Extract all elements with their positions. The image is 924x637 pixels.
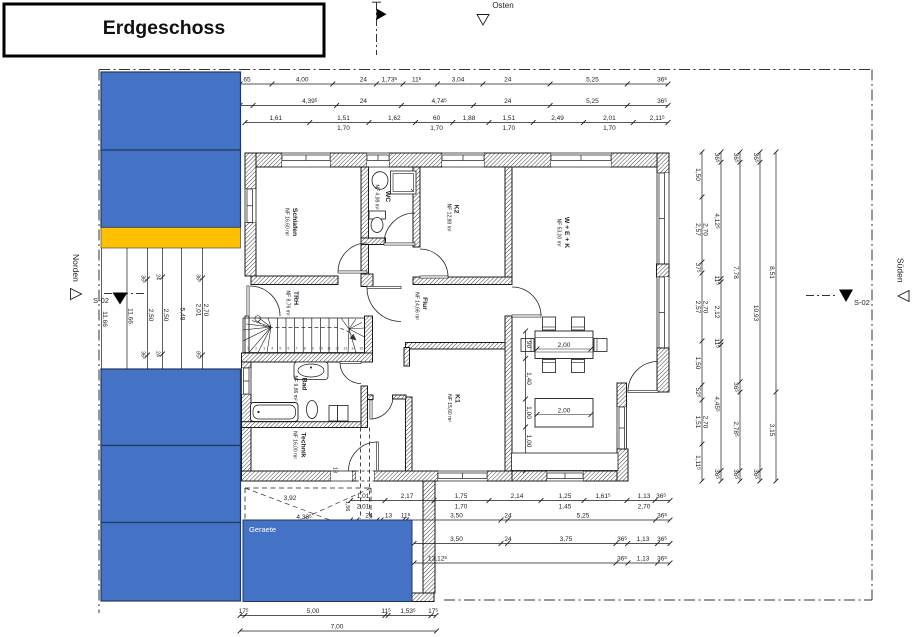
- svg-text:5,00: 5,00: [307, 608, 320, 615]
- svg-text:3,50: 3,50: [450, 536, 463, 543]
- svg-text:1,70: 1,70: [502, 125, 515, 132]
- svg-text:2,70: 2,70: [701, 416, 708, 429]
- svg-text:1,13: 1,13: [638, 493, 651, 500]
- svg-text:NF 16,60 m²: NF 16,60 m²: [284, 208, 290, 236]
- svg-text:9: 9: [312, 347, 314, 351]
- svg-text:13: 13: [385, 512, 393, 519]
- svg-text:1,50: 1,50: [694, 357, 701, 370]
- svg-text:2,01: 2,01: [195, 304, 202, 317]
- svg-text:24: 24: [155, 351, 161, 357]
- svg-text:Geraete: Geraete: [249, 525, 276, 534]
- svg-text:13: 13: [343, 347, 347, 351]
- svg-text:11,66: 11,66: [126, 308, 133, 324]
- svg-text:24: 24: [504, 512, 512, 519]
- svg-text:2,49: 2,49: [551, 115, 564, 122]
- svg-text:2,70: 2,70: [701, 301, 708, 314]
- svg-text:5,48: 5,48: [178, 308, 185, 321]
- svg-text:1,88: 1,88: [463, 115, 476, 122]
- svg-text:10,93: 10,93: [752, 305, 759, 322]
- svg-text:11,66: 11,66: [101, 311, 108, 327]
- svg-text:24: 24: [365, 512, 373, 519]
- svg-text:24: 24: [360, 98, 368, 105]
- svg-text:Flur: Flur: [421, 297, 428, 310]
- svg-text:1,13: 1,13: [637, 536, 650, 543]
- svg-text:NF 16,00 m²: NF 16,00 m²: [292, 431, 298, 459]
- svg-text:14: 14: [351, 347, 355, 351]
- svg-text:5,25: 5,25: [586, 98, 599, 105]
- svg-text:15: 15: [359, 347, 363, 351]
- svg-text:NF 9,86 m²: NF 9,86 m²: [292, 375, 298, 400]
- svg-text:60: 60: [433, 115, 441, 122]
- svg-text:3,92: 3,92: [284, 495, 297, 502]
- svg-text:TRH: TRH: [292, 291, 299, 305]
- svg-text:S-02: S-02: [93, 296, 109, 305]
- svg-text:2,70: 2,70: [638, 504, 651, 511]
- svg-text:Norden: Norden: [71, 254, 81, 282]
- svg-text:18: 18: [332, 467, 338, 473]
- svg-text:K1: K1: [454, 394, 461, 403]
- svg-text:1,50: 1,50: [694, 168, 701, 181]
- svg-text:2,00: 2,00: [558, 342, 571, 349]
- svg-text:1: 1: [247, 347, 249, 351]
- svg-text:2,70: 2,70: [701, 223, 708, 236]
- svg-text:2,50: 2,50: [162, 309, 169, 322]
- svg-text:24: 24: [155, 274, 161, 280]
- svg-text:3,04: 3,04: [452, 76, 465, 83]
- svg-text:4: 4: [271, 347, 273, 351]
- svg-text:NF 15,60 m²: NF 15,60 m²: [446, 394, 452, 422]
- svg-text:7,00: 7,00: [331, 623, 344, 630]
- svg-text:2,00: 2,00: [558, 408, 571, 415]
- svg-text:2,01: 2,01: [357, 504, 370, 511]
- svg-text:1,13: 1,13: [637, 555, 650, 562]
- svg-text:3,75: 3,75: [560, 536, 573, 543]
- svg-text:2: 2: [255, 347, 257, 351]
- svg-text:1,45: 1,45: [559, 504, 572, 511]
- svg-text:1,40: 1,40: [525, 372, 532, 385]
- svg-text:1,70: 1,70: [430, 125, 443, 132]
- svg-text:1,00: 1,00: [525, 435, 532, 448]
- svg-text:1,75: 1,75: [455, 493, 468, 500]
- svg-text:WC: WC: [384, 191, 391, 202]
- svg-text:1,00: 1,00: [525, 406, 532, 419]
- svg-text:8: 8: [304, 347, 306, 351]
- svg-text:1,62: 1,62: [388, 115, 401, 122]
- svg-text:65: 65: [243, 76, 251, 83]
- svg-text:NF 53,00 m²: NF 53,00 m²: [556, 219, 562, 247]
- svg-text:5: 5: [279, 347, 281, 351]
- svg-text:1,70: 1,70: [603, 125, 616, 132]
- svg-text:NF 14,66 m²: NF 14,66 m²: [414, 292, 420, 320]
- svg-text:4,00: 4,00: [296, 76, 309, 83]
- svg-text:Süden: Süden: [896, 258, 906, 283]
- svg-text:Technik: Technik: [300, 432, 307, 457]
- svg-text:2,70: 2,70: [202, 304, 209, 317]
- svg-text:1,56: 1,56: [344, 501, 350, 512]
- svg-text:3,15: 3,15: [768, 424, 775, 437]
- svg-text:3: 3: [263, 347, 265, 351]
- svg-text:10: 10: [319, 347, 323, 351]
- svg-text:8,51: 8,51: [768, 266, 775, 279]
- svg-text:Osten: Osten: [492, 1, 513, 10]
- svg-text:1,25: 1,25: [559, 493, 572, 500]
- svg-text:1,61: 1,61: [269, 115, 282, 122]
- svg-text:NF 8,76 m²: NF 8,76 m²: [285, 290, 291, 315]
- svg-text:7: 7: [296, 347, 298, 351]
- svg-text:2,14: 2,14: [511, 493, 524, 500]
- svg-text:Schlafen: Schlafen: [291, 208, 298, 236]
- svg-text:5,25: 5,25: [577, 512, 590, 519]
- svg-text:7,78: 7,78: [732, 266, 739, 279]
- svg-text:11: 11: [327, 347, 331, 351]
- svg-text:NF 12,88 m²: NF 12,88 m²: [446, 204, 452, 232]
- svg-text:K2: K2: [453, 205, 460, 214]
- svg-text:2,57: 2,57: [694, 223, 701, 236]
- svg-text:Erdgeschoss: Erdgeschoss: [103, 17, 226, 39]
- svg-text:1,01: 1,01: [357, 493, 370, 500]
- svg-text:24: 24: [504, 98, 512, 105]
- svg-text:90: 90: [525, 341, 532, 349]
- svg-text:24: 24: [504, 76, 512, 83]
- svg-text:2,57: 2,57: [694, 301, 701, 314]
- svg-text:Bad: Bad: [301, 378, 308, 391]
- svg-text:1,70: 1,70: [337, 125, 350, 132]
- svg-text:1,51: 1,51: [694, 416, 701, 429]
- svg-text:12: 12: [335, 347, 339, 351]
- svg-text:1,70: 1,70: [455, 504, 468, 511]
- svg-text:2,01: 2,01: [603, 115, 616, 122]
- svg-text:2,50: 2,50: [147, 309, 154, 322]
- svg-text:24: 24: [360, 76, 368, 83]
- svg-text:5,25: 5,25: [586, 76, 599, 83]
- svg-text:2,12: 2,12: [713, 306, 720, 319]
- svg-text:1,51: 1,51: [502, 115, 515, 122]
- svg-text:3,50: 3,50: [450, 512, 463, 519]
- svg-text:2,17: 2,17: [401, 493, 414, 500]
- svg-text:24: 24: [504, 536, 512, 543]
- svg-text:S-02: S-02: [854, 298, 870, 307]
- svg-text:W + E + K: W + E + K: [563, 217, 570, 248]
- svg-text:NF 4,98 m²: NF 4,98 m²: [374, 184, 380, 209]
- svg-text:6: 6: [288, 347, 290, 351]
- svg-text:1,51: 1,51: [337, 115, 350, 122]
